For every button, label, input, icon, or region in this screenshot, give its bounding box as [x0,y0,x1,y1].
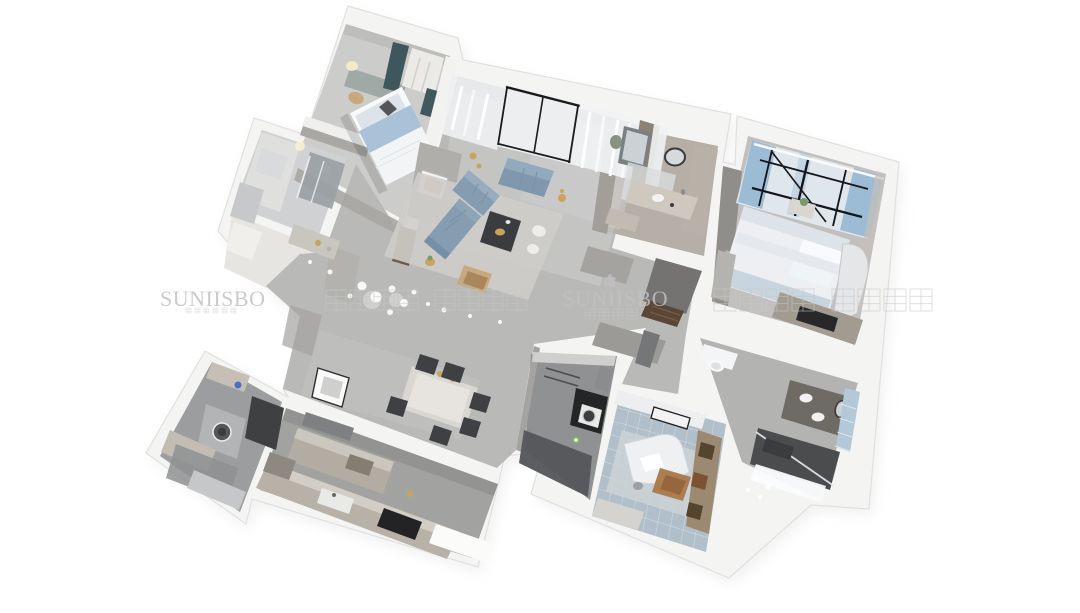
svg-text:SUNIISBO: SUNIISBO [562,286,668,311]
svg-text:SUNIISBO: SUNIISBO [160,286,265,311]
